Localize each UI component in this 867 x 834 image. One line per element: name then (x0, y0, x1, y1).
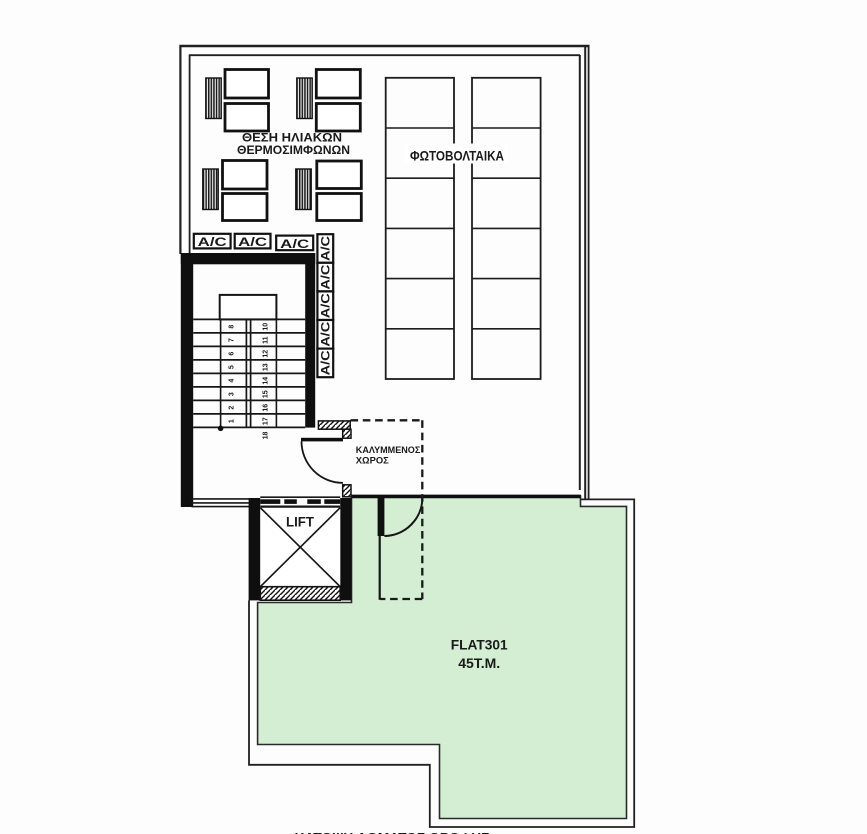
svg-text:13: 13 (263, 363, 270, 371)
svg-text:ΘΕΣΗ ΗΛΙΑΚΩΝ: ΘΕΣΗ ΗΛΙΑΚΩΝ (242, 133, 342, 145)
svg-text:6: 6 (229, 352, 236, 356)
svg-text:18: 18 (263, 432, 270, 440)
svg-text:A/C: A/C (198, 235, 227, 249)
svg-text:A/C: A/C (280, 237, 309, 251)
svg-text:3: 3 (229, 392, 236, 396)
svg-text:8: 8 (229, 325, 236, 329)
svg-text:A/C: A/C (321, 322, 333, 347)
svg-text:ΧΩΡΟΣ: ΧΩΡΟΣ (356, 455, 390, 465)
svg-text:5: 5 (229, 365, 236, 369)
svg-text:A/C: A/C (321, 293, 333, 318)
svg-text:ΚΑΛΥΜΜΕΝΟΣ: ΚΑΛΥΜΜΕΝΟΣ (356, 445, 421, 455)
svg-text:A/C: A/C (321, 350, 333, 375)
svg-text:45T.M.: 45T.M. (458, 655, 500, 671)
svg-text:14: 14 (263, 377, 270, 385)
svg-text:2: 2 (229, 406, 236, 410)
svg-text:4: 4 (229, 379, 236, 383)
svg-text:15: 15 (263, 390, 270, 398)
svg-text:A/C: A/C (321, 236, 333, 261)
svg-text:1: 1 (229, 419, 236, 423)
svg-text:12: 12 (263, 350, 270, 358)
svg-text:A/C: A/C (238, 235, 267, 249)
svg-text:16: 16 (263, 404, 270, 412)
svg-text:FLAT301: FLAT301 (451, 637, 508, 653)
svg-text:ΚΑΤΟΨΗ ΔΩΜΑΤΟΣ ΟΡΟΦΗΣ: ΚΑΤΟΨΗ ΔΩΜΑΤΟΣ ΟΡΟΦΗΣ (295, 830, 490, 834)
svg-text:LIFT: LIFT (286, 515, 315, 530)
svg-text:A/C: A/C (321, 265, 333, 290)
svg-text:ΦΩΤΟΒΟΛΤΑΙΚΑ: ΦΩΤΟΒΟΛΤΑΙΚΑ (410, 149, 504, 164)
svg-text:17: 17 (263, 417, 270, 425)
svg-text:10: 10 (263, 323, 270, 331)
svg-text:ΘΕΡΜΟΣΙΜΦΩΝΩΝ: ΘΕΡΜΟΣΙΜΦΩΝΩΝ (237, 145, 350, 157)
svg-text:7: 7 (229, 338, 236, 342)
svg-text:11: 11 (263, 336, 270, 344)
